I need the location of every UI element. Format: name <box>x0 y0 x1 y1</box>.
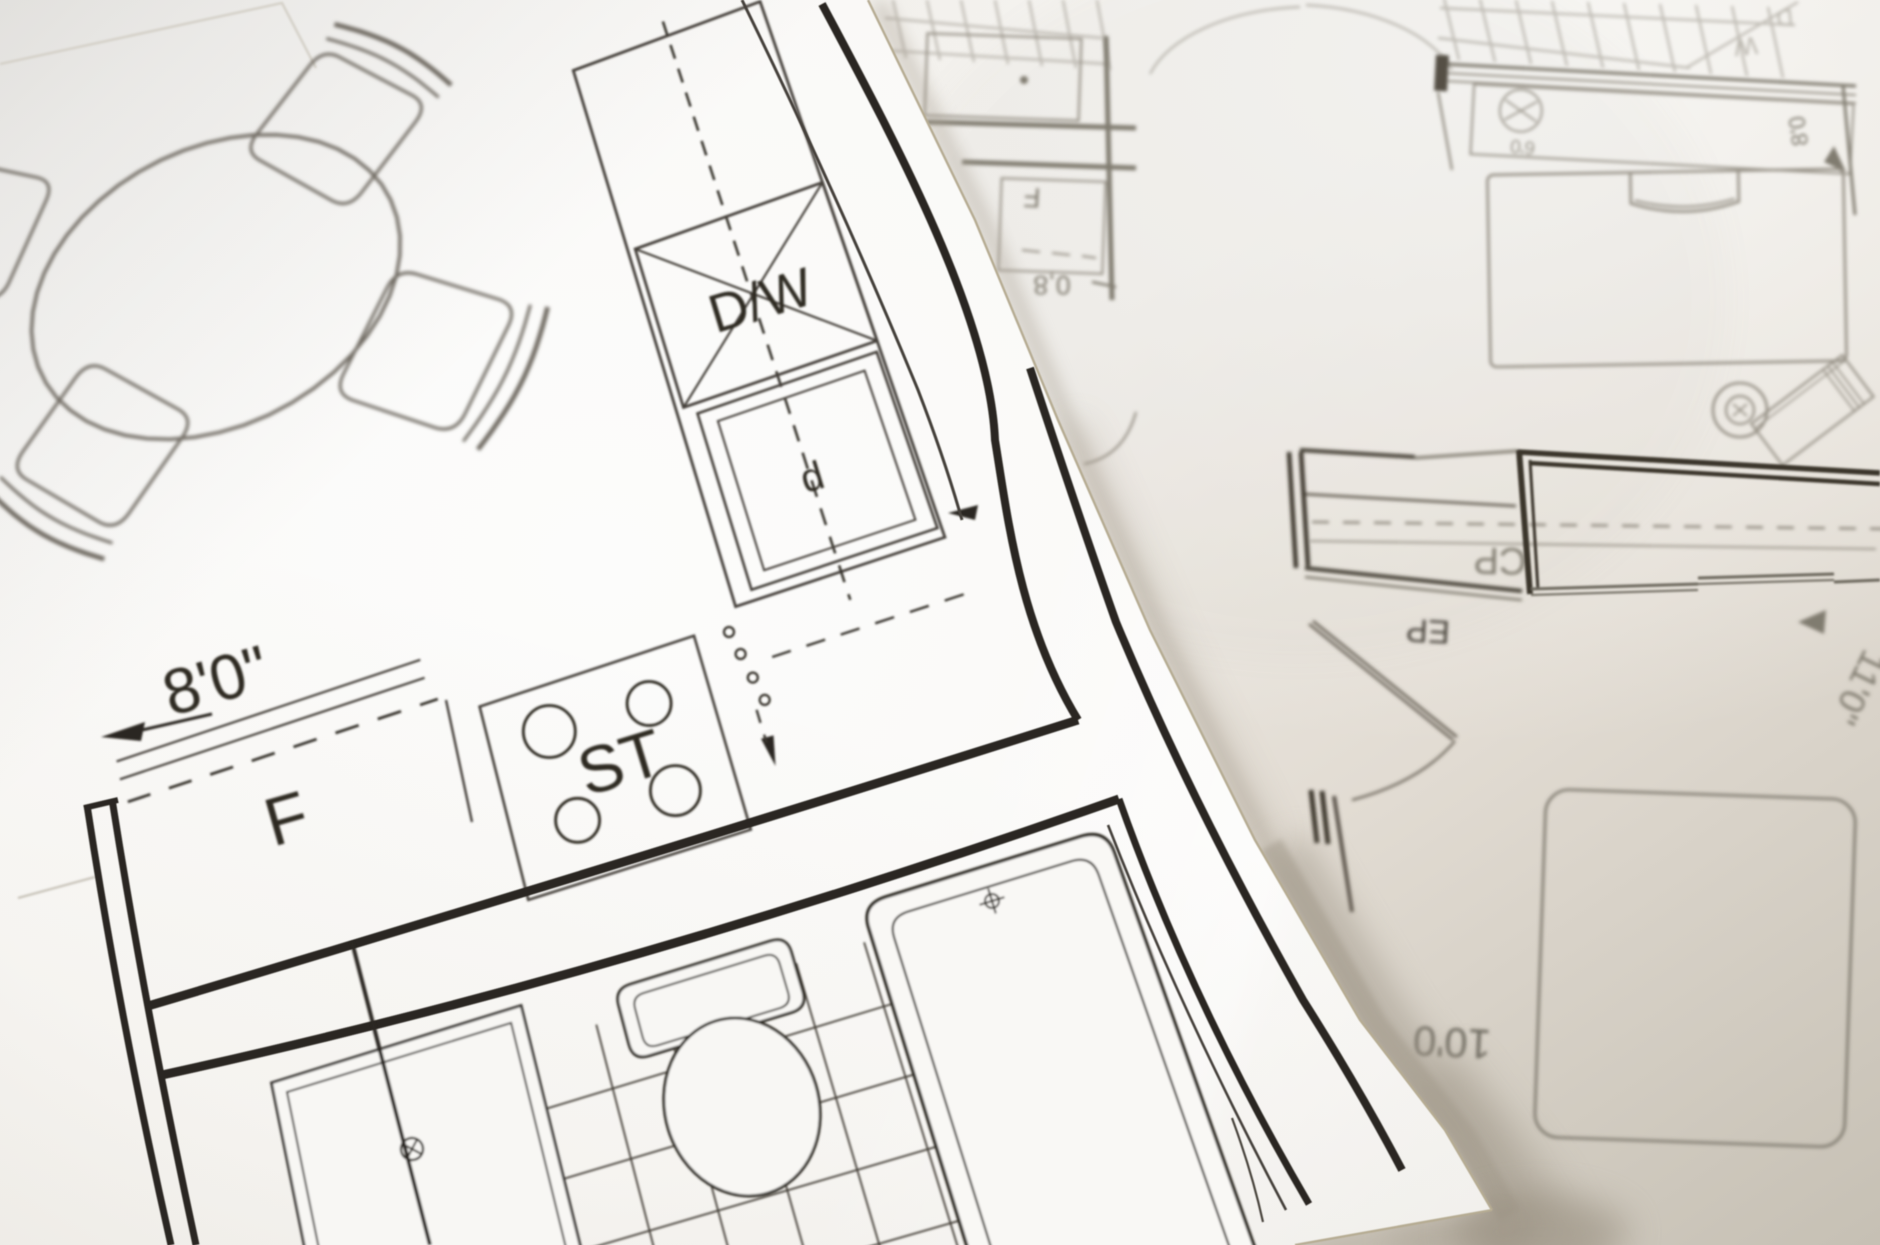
svg-text:6'0: 6'0 <box>1509 135 1536 158</box>
svg-text:EP: EP <box>1405 612 1451 651</box>
svg-text:F: F <box>1023 182 1042 214</box>
svg-text:8'0: 8'0 <box>1783 114 1813 147</box>
svg-text:0,8: 0,8 <box>1033 270 1071 300</box>
svg-text:D: D <box>1775 4 1794 32</box>
svg-text:W: W <box>1732 31 1759 61</box>
svg-text:CP: CP <box>1473 539 1527 582</box>
